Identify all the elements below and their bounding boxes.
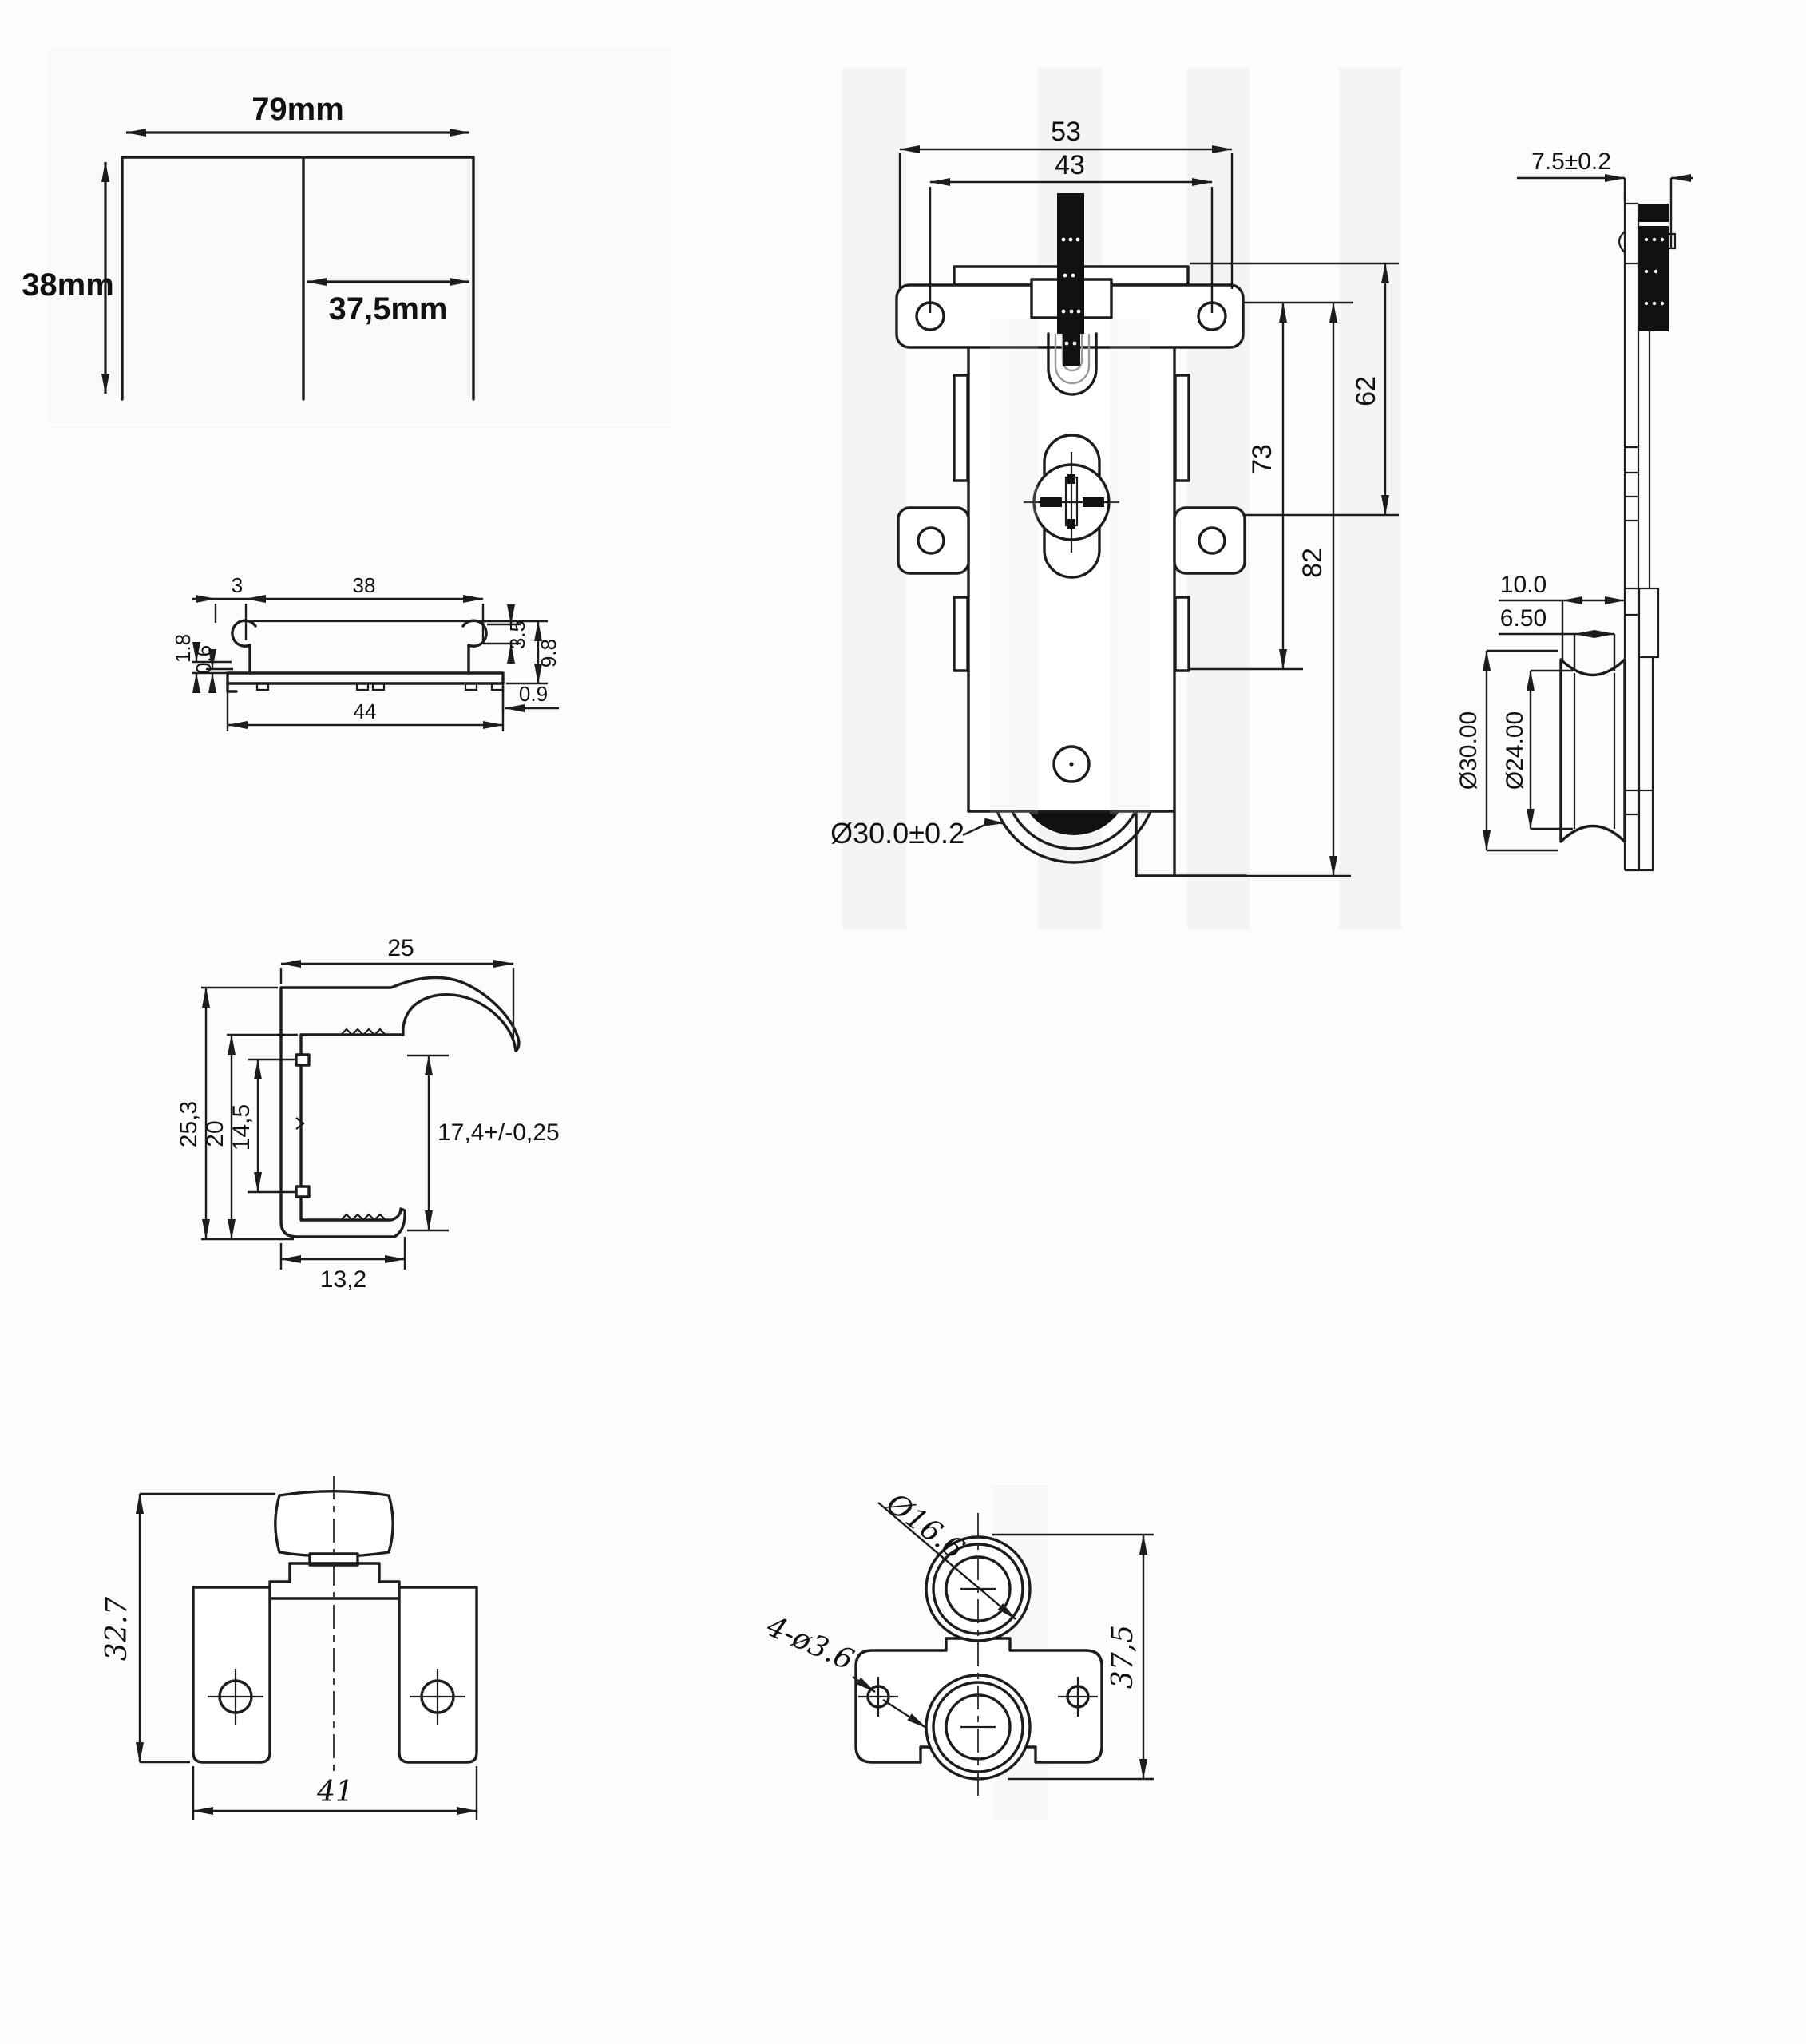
bracket-leg xyxy=(193,1587,270,1762)
dim-0-6: 0.6 xyxy=(192,645,216,674)
web-nib xyxy=(296,1055,309,1065)
dim-79mm: 79mm xyxy=(251,92,344,127)
dim-62: 62 xyxy=(1351,376,1381,406)
dim-6-50: 6.50 xyxy=(1500,605,1547,632)
dim-24-00: Ø24.00 xyxy=(1502,711,1528,790)
dim-37-5mm: 37,5mm xyxy=(329,291,448,327)
dim-14-5: 14,5 xyxy=(228,1104,255,1151)
rail xyxy=(954,597,968,671)
dim-32-7: 32.7 xyxy=(101,1597,133,1661)
side-profile xyxy=(1619,192,1675,870)
bottom-bracket-figure: 32.7 41 xyxy=(101,1476,477,1820)
rail xyxy=(1175,597,1189,671)
web-nib xyxy=(296,1186,309,1197)
dim-38mm: 38mm xyxy=(22,267,114,303)
dim-37-5: 37,5 xyxy=(1107,1625,1139,1689)
technical-drawing: 79mm 38mm 37,5mm 3 38 3.5 xyxy=(0,0,1806,2044)
dim-43: 43 xyxy=(1055,150,1085,180)
rail xyxy=(1175,375,1189,481)
dim-9-8: 9.8 xyxy=(537,639,560,667)
dim-10-0: 10.0 xyxy=(1500,572,1547,598)
dim-wheel-dia: Ø30.0±0.2 xyxy=(830,817,964,850)
dim-73: 73 xyxy=(1247,444,1277,474)
tab-hole xyxy=(1199,528,1225,553)
drawing-sheet: 79mm 38mm 37,5mm 3 38 3.5 xyxy=(0,0,1806,2044)
dim-3: 3 xyxy=(232,573,243,597)
dim-82: 82 xyxy=(1297,548,1328,578)
dim-53: 53 xyxy=(1051,117,1081,147)
dim-30-00: Ø30.00 xyxy=(1455,711,1482,790)
dim-16-6: Ø16.6 xyxy=(880,1487,970,1566)
dim-41: 41 xyxy=(316,1776,354,1808)
dim-20: 20 xyxy=(202,1120,228,1147)
handle-outline xyxy=(281,977,519,1237)
dim-17-4: 17,4+/-0,25 xyxy=(438,1119,560,1146)
dim-44: 44 xyxy=(354,699,377,723)
dim-3-5: 3.5 xyxy=(505,620,529,649)
side-wheel xyxy=(1561,660,1625,842)
guide-figure: Ø16.6 4-ø3.6 37,5 xyxy=(761,1487,1154,1802)
rail xyxy=(954,375,968,481)
handle-profile-figure: 25 25,3 20 14,5 17,4+/-0,25 13,2 xyxy=(176,935,560,1293)
dim-0-9: 0.9 xyxy=(519,682,548,706)
roller-side-figure: 7.5±0.2 10.0 6.50 Ø30.00 Ø24.00 xyxy=(1455,149,1693,870)
dim-4-3-6: 4-ø3.6 xyxy=(761,1610,858,1677)
dim-25: 25 xyxy=(387,935,414,961)
track-profile-figure: 3 38 3.5 9.8 1.8 0.6 44 0.9 xyxy=(171,573,560,731)
dim-38: 38 xyxy=(353,573,376,597)
tab-hole xyxy=(918,528,944,553)
track-dimensions: 3 38 3.5 9.8 1.8 0.6 44 0.9 xyxy=(171,573,560,731)
dim-7-5: 7.5±0.2 xyxy=(1531,149,1611,175)
dim-25-3: 25,3 xyxy=(176,1101,202,1147)
track-outline xyxy=(228,620,503,691)
dim-13-2: 13,2 xyxy=(320,1266,366,1293)
